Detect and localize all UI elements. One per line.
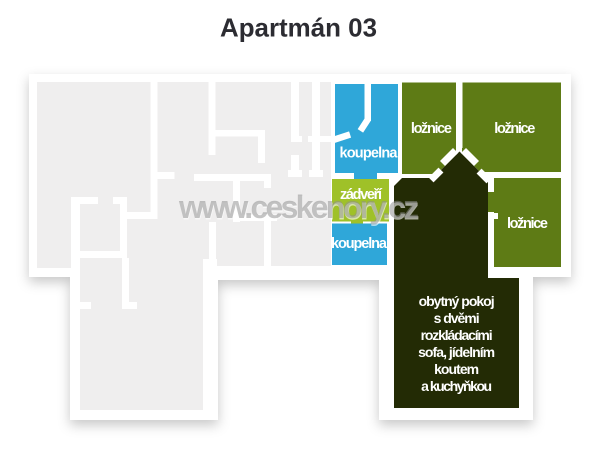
svg-text:Apartmán 03: Apartmán 03	[220, 13, 377, 43]
svg-text:rozkládacími: rozkládacími	[421, 327, 493, 343]
svg-text:koupelna: koupelna	[340, 146, 399, 162]
svg-text:s dvěmi: s dvěmi	[434, 310, 480, 326]
svg-text:ložnice: ložnice	[507, 216, 548, 232]
svg-text:obytný pokoj: obytný pokoj	[419, 293, 495, 309]
svg-text:koutem: koutem	[434, 361, 479, 377]
svg-text:ložnice: ložnice	[411, 121, 452, 137]
svg-text:ložnice: ložnice	[494, 121, 535, 137]
svg-text:koupelna: koupelna	[331, 236, 388, 252]
svg-text:sofa, jídelním: sofa, jídelním	[418, 344, 495, 360]
svg-text:a kuchyňkou: a kuchyňkou	[421, 378, 492, 394]
svg-text:www.ceskenory.cz: www.ceskenory.cz	[178, 189, 419, 225]
